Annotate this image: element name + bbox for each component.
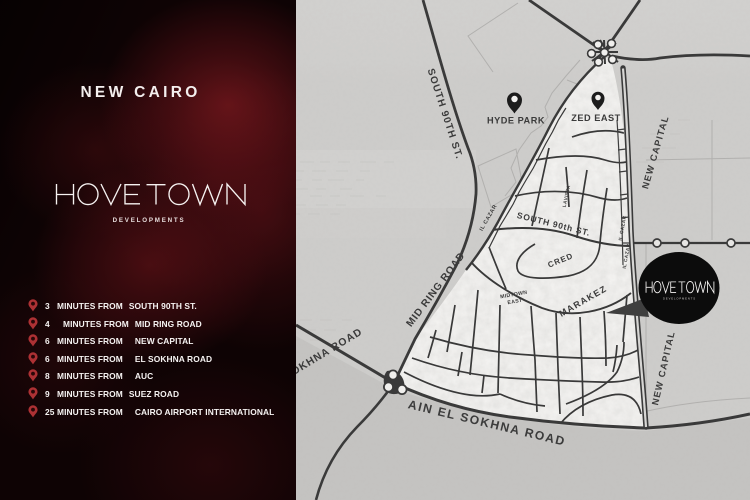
svg-text:HYDE PARK: HYDE PARK	[487, 116, 545, 126]
svg-text:DEVELOPMENTS: DEVELOPMENTS	[663, 297, 696, 301]
svg-text:ZED EAST: ZED EAST	[571, 113, 620, 123]
